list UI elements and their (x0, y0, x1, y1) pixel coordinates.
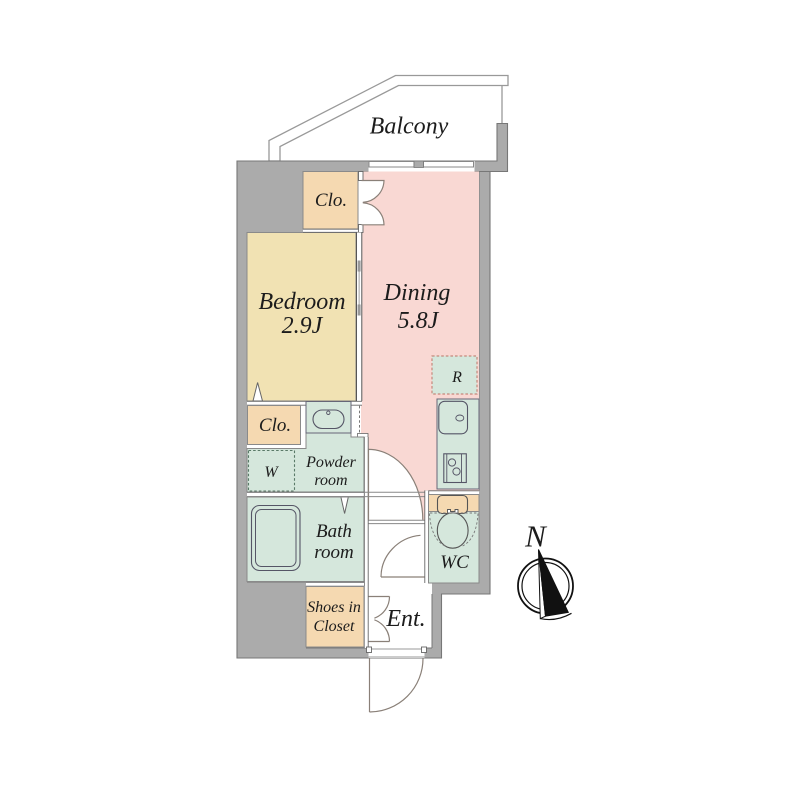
svg-text:Balcony: Balcony (370, 114, 449, 140)
svg-text:Clo.: Clo. (315, 190, 347, 211)
svg-text:Closet: Closet (314, 618, 355, 635)
svg-text:2.9J: 2.9J (282, 313, 324, 339)
svg-text:Clo.: Clo. (259, 415, 291, 436)
svg-text:Dining: Dining (383, 280, 451, 306)
svg-text:room: room (314, 472, 347, 489)
svg-text:R: R (451, 369, 462, 386)
svg-text:Ent.: Ent. (385, 606, 425, 632)
svg-text:5.8J: 5.8J (398, 308, 440, 334)
svg-text:room: room (314, 542, 353, 563)
svg-text:W: W (264, 464, 279, 481)
svg-text:Bedroom: Bedroom (258, 289, 345, 315)
svg-text:N: N (524, 519, 548, 554)
svg-text:Shoes in: Shoes in (307, 599, 361, 616)
svg-text:Bath: Bath (316, 521, 352, 542)
svg-text:WC: WC (440, 552, 469, 573)
svg-text:Powder: Powder (305, 454, 357, 471)
